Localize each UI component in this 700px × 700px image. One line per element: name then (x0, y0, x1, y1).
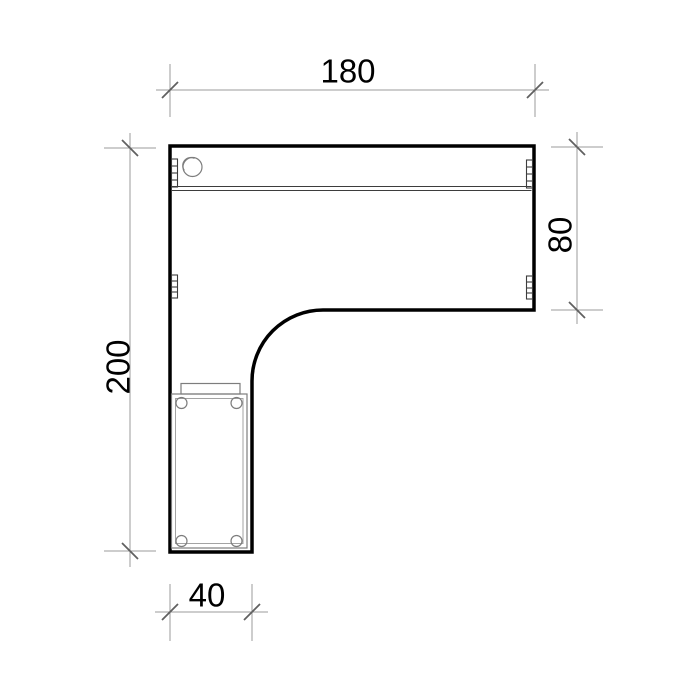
grommet-circle (183, 158, 202, 177)
desk-outline (170, 146, 534, 552)
dimension-top: 180 (156, 53, 549, 117)
dimension-bottom: 40 (155, 577, 268, 641)
caster-bottom-left (176, 536, 187, 547)
dimension-label-right: 80 (542, 217, 579, 254)
dimension-label-bottom: 40 (189, 577, 226, 614)
desk-plan (170, 146, 534, 552)
pedestal-handle (181, 384, 240, 395)
dimension-label-left: 200 (100, 339, 137, 394)
dimension-left: 200 (100, 133, 156, 567)
pedestal-body-inner (176, 399, 244, 544)
connector-strip-left-mid (172, 275, 178, 298)
connector-strip-left-top (172, 159, 178, 187)
dimension-label-top: 180 (320, 53, 375, 90)
cable-grommet (183, 157, 202, 176)
pedestal (172, 384, 248, 549)
technical-drawing-canvas: 180 80 200 40 (0, 0, 700, 700)
caster-top-right (231, 398, 242, 409)
caster-top-left (176, 398, 187, 409)
caster-bottom-right (231, 536, 242, 547)
dimension-right: 80 (542, 132, 603, 324)
grommet-arc (183, 157, 195, 170)
pedestal-body (172, 394, 248, 548)
connector-strip-right-top (527, 160, 533, 188)
connector-strip-right-mid (527, 276, 533, 299)
